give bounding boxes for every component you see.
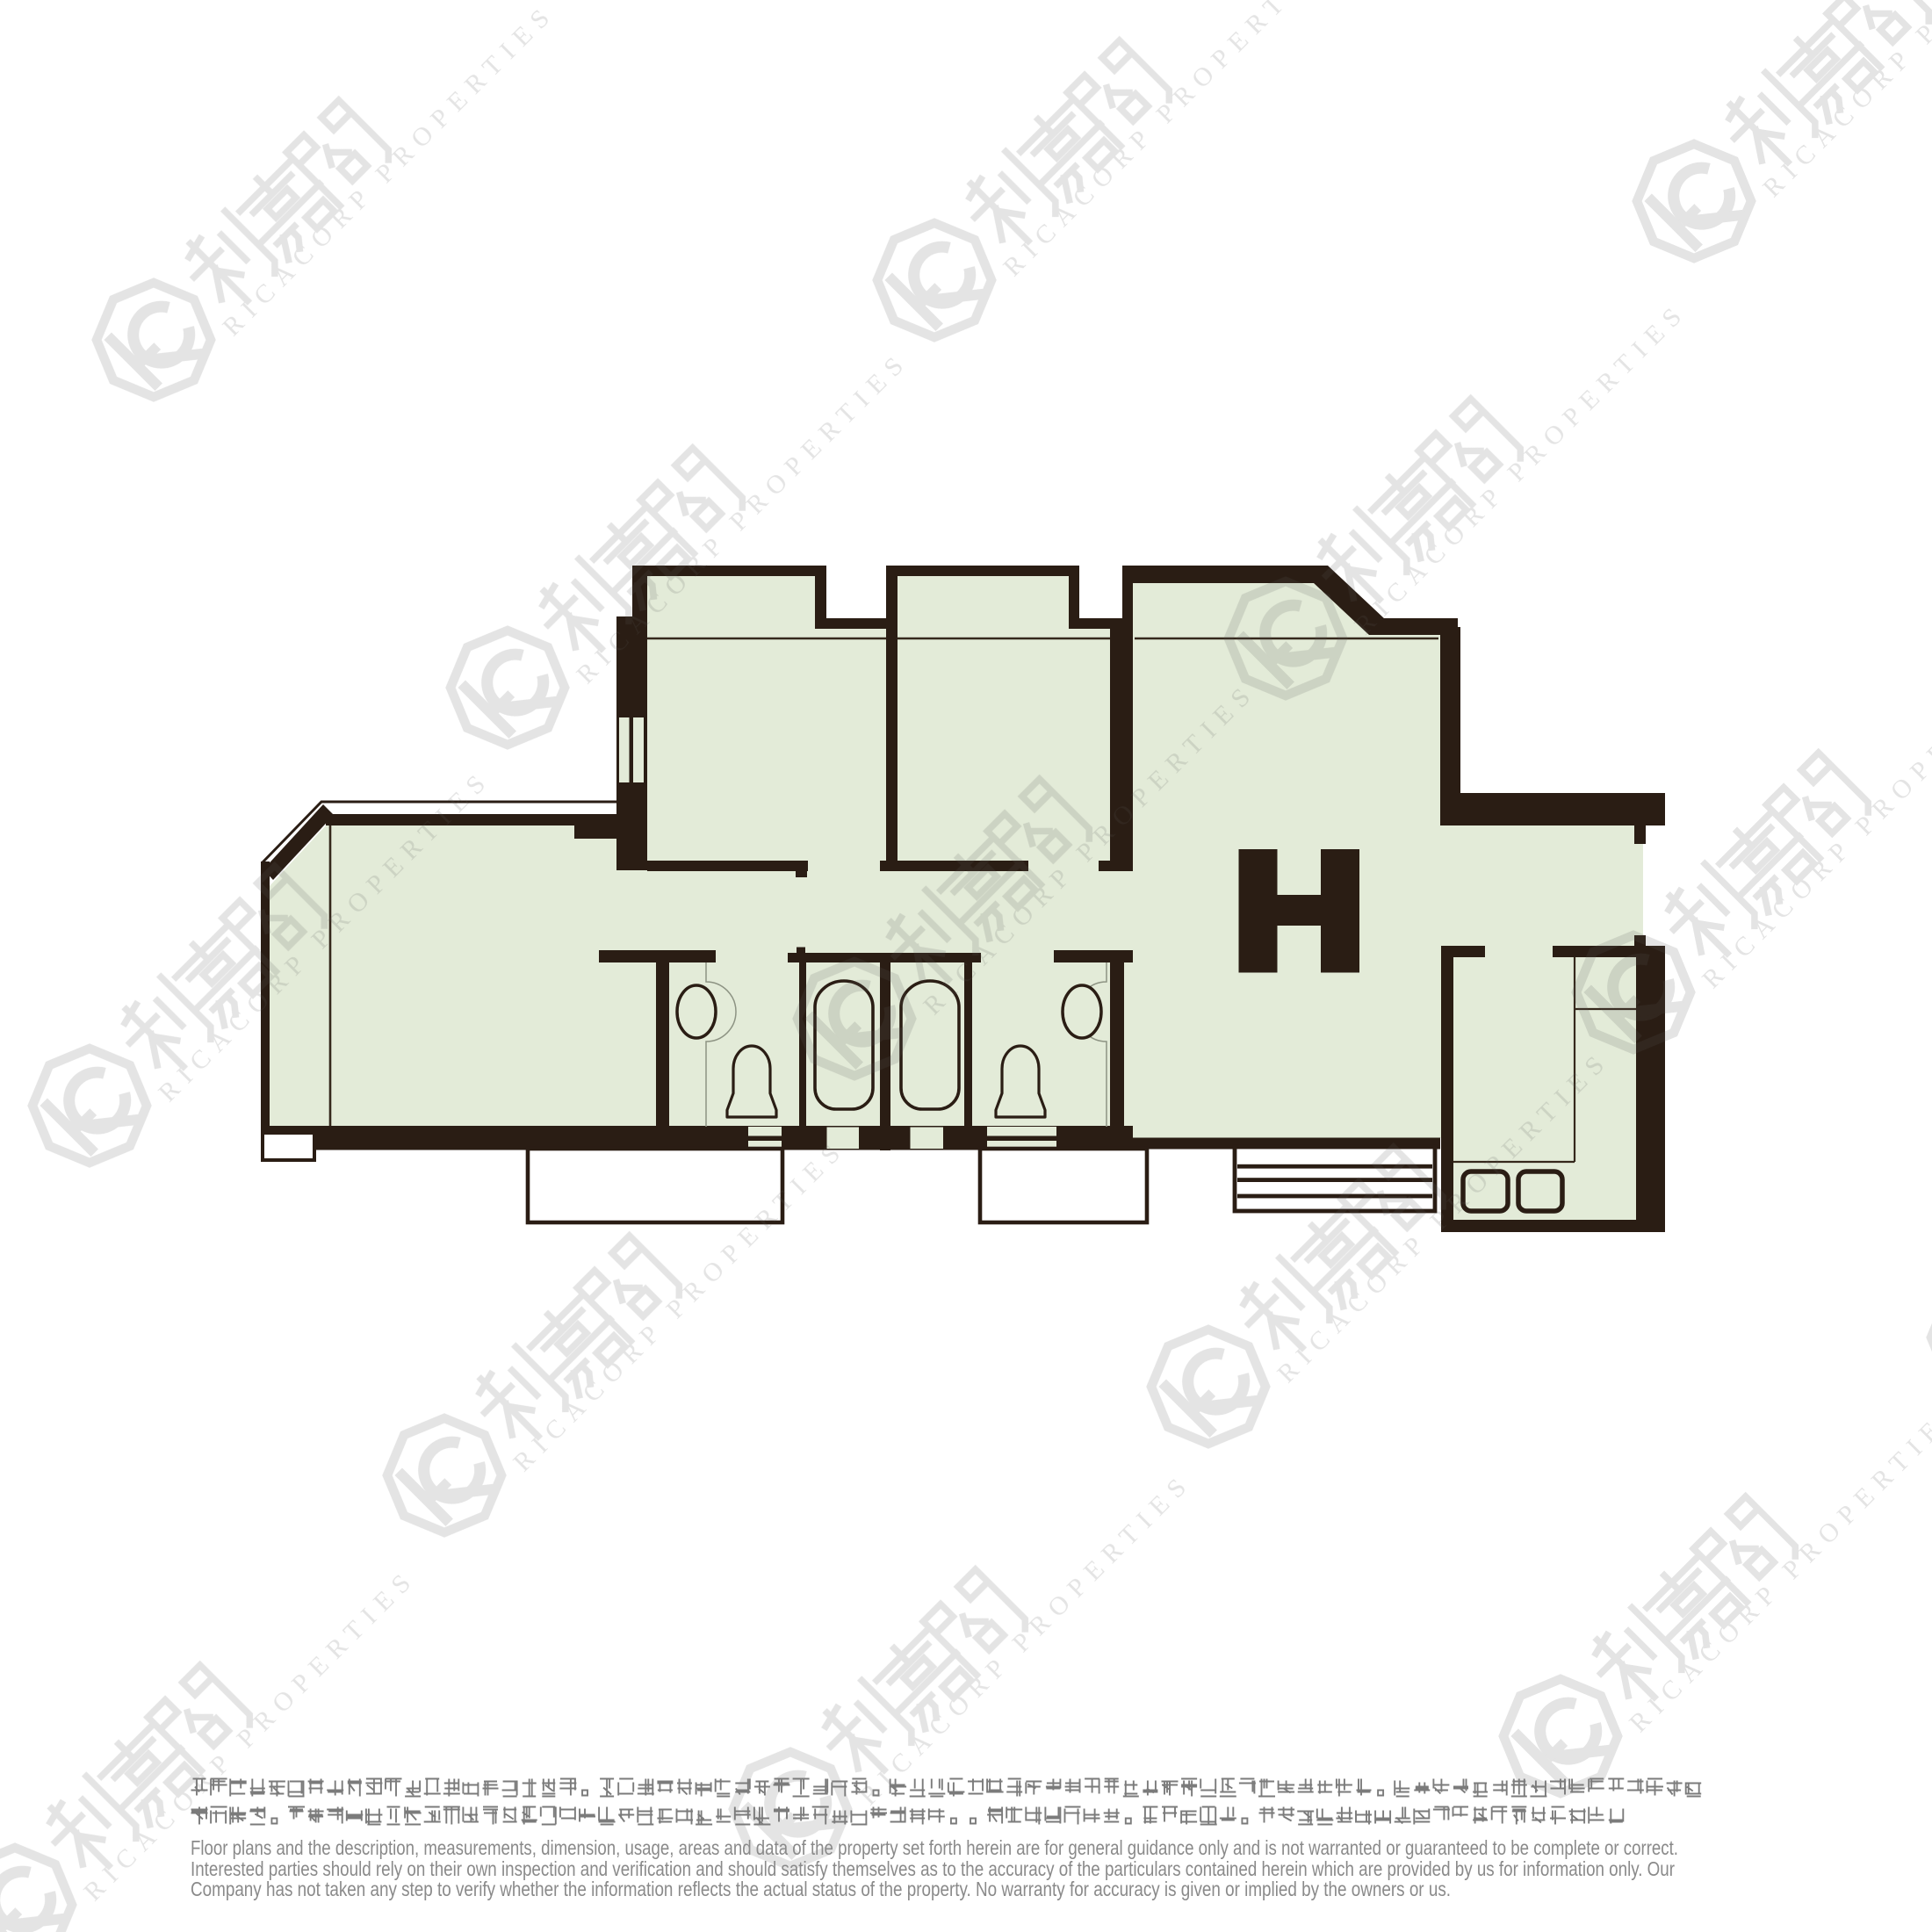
svg-text:Floor plans and the descriptio: Floor plans and the description, measure… xyxy=(191,1836,1678,1859)
svg-text:Company has not taken any step: Company has not taken any step to verify… xyxy=(191,1878,1451,1900)
